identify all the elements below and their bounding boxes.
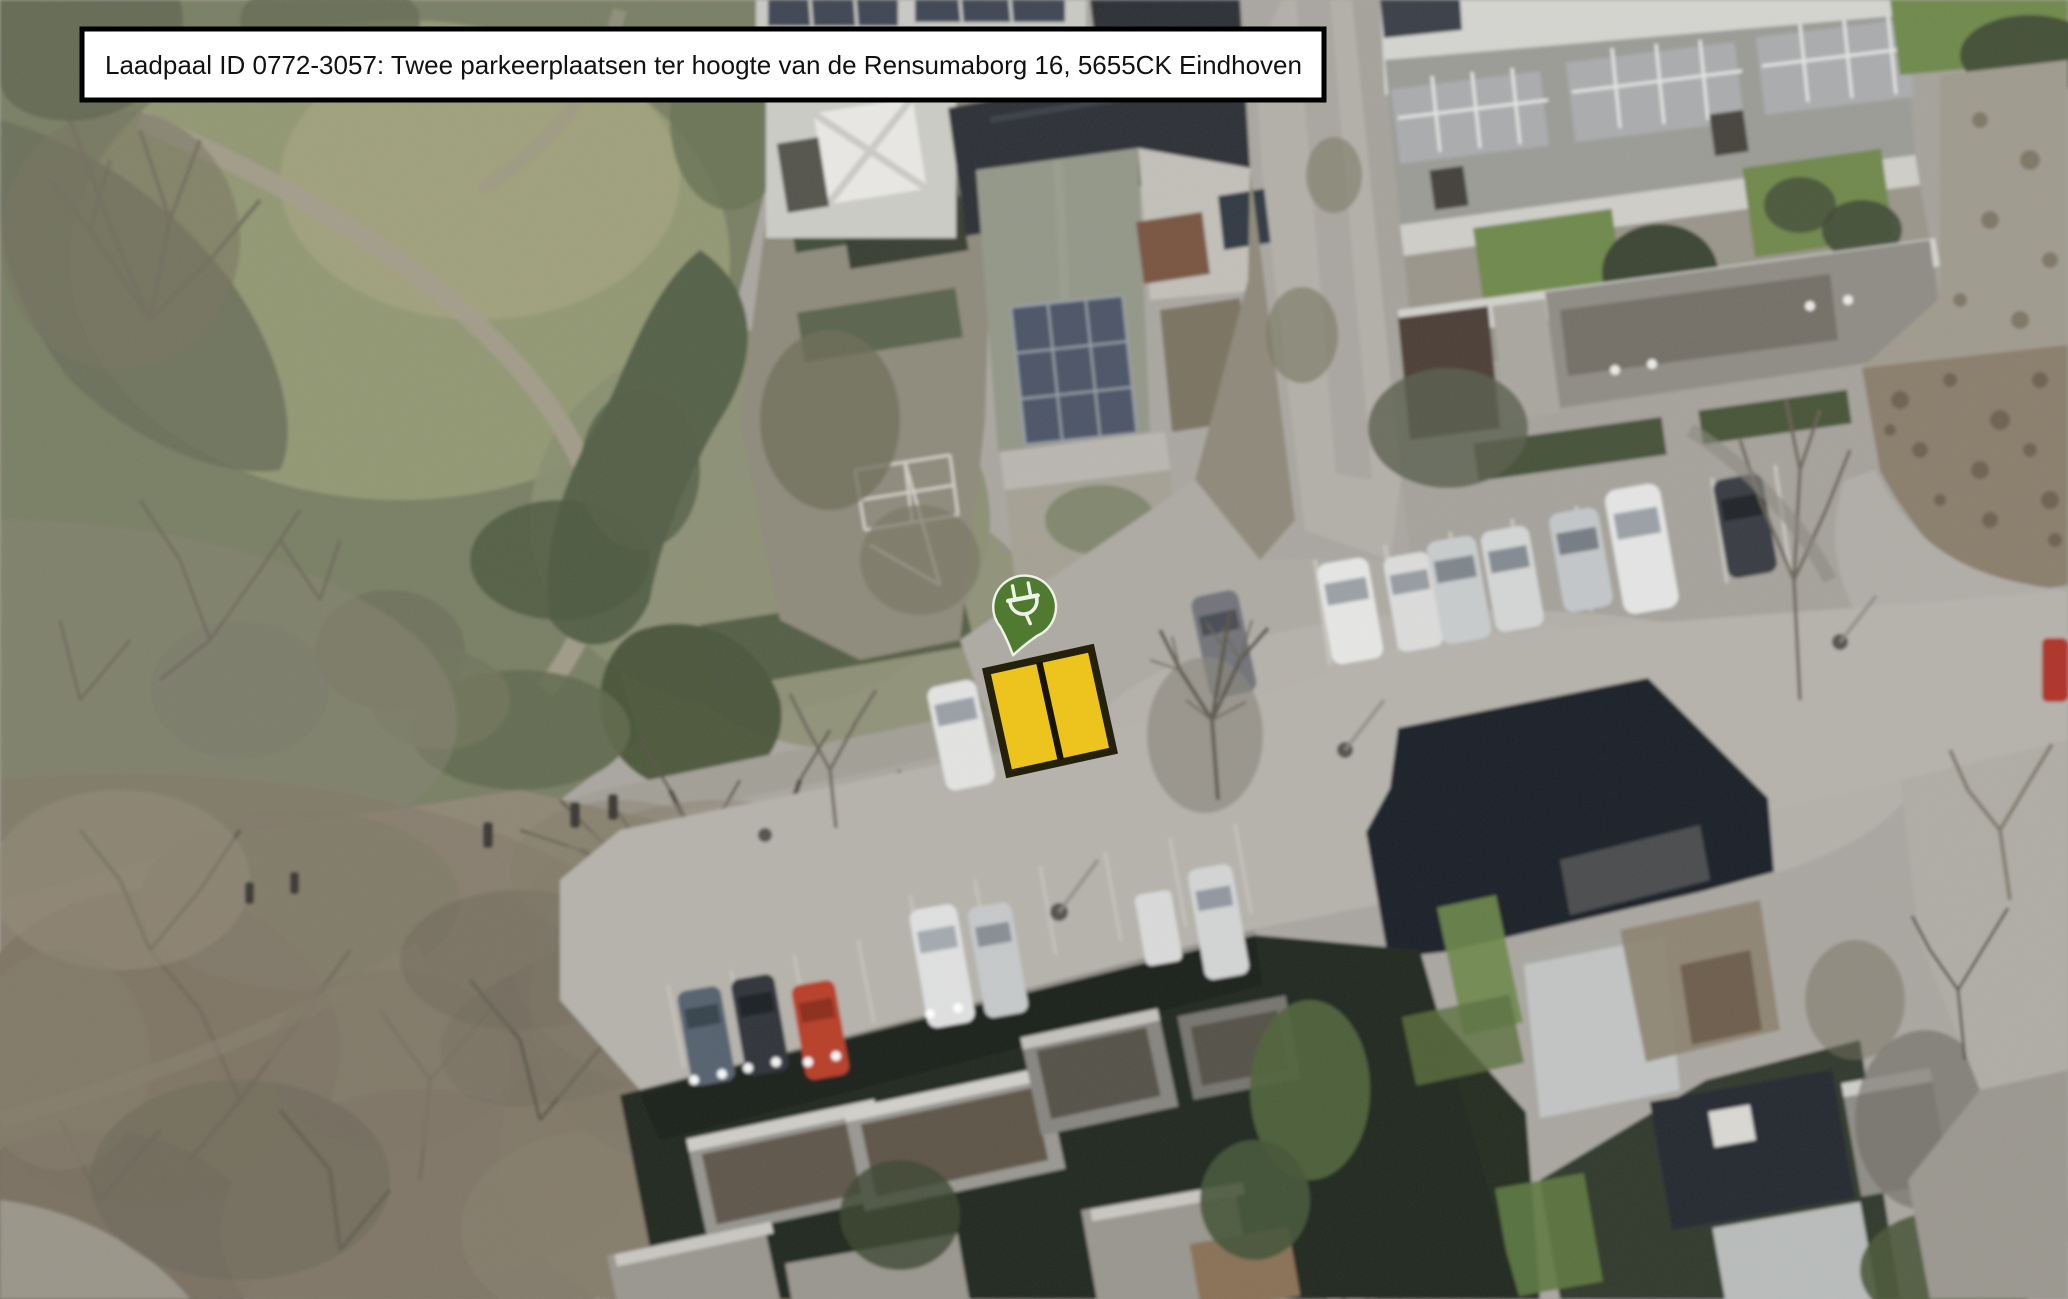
svg-text:Laadpaal ID 0772-3057: Twee pa: Laadpaal ID 0772-3057: Twee parkeerplaat… [105,50,1302,80]
